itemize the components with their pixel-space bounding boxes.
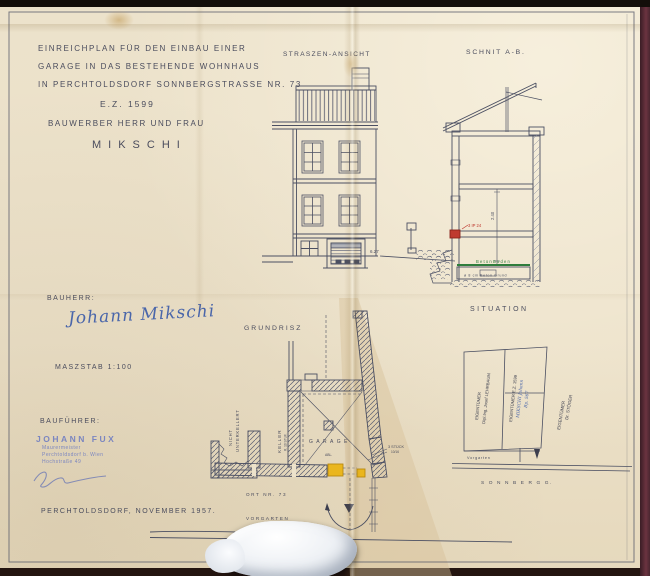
baufuehrer-label: BAUFÜHRER: [40, 418, 101, 425]
section-foundation-label: ø 8 cm Beton Grund [464, 274, 507, 278]
elevation-title: STRASZEN-ANSICHT [283, 51, 371, 58]
section-beam-label: 3 IP 24 [468, 223, 482, 228]
floorplan-keller-sub: R. 10 STUF. [284, 434, 288, 451]
applicant-label: BAUWERBER HERR UND FRAU [48, 119, 205, 128]
section-dim-height: 2.40 [490, 211, 495, 220]
floorplan-stueck-label: 3 STÜCK [388, 445, 405, 449]
section-title: SCHNIT A-B. [466, 49, 526, 56]
date-place-line: PERCHTOLDSDORF, NOVEMBER 1957. [41, 508, 216, 515]
applicant-name: MIKSCHI [92, 139, 187, 151]
section-floor-label: BetonBoden [476, 259, 511, 264]
floorplan-nicht-label: NICHT [228, 429, 233, 446]
floorplan-keller-label: KELLER [277, 429, 282, 453]
stamp-line-4: Hochstraße 49 [42, 459, 116, 465]
situation-owner-right-2: Dr. STÖGER [564, 394, 573, 420]
situation-vorgarten-label: Vorgarten [467, 456, 491, 460]
stamp-line-2: Maurermeister [42, 445, 116, 451]
section-drawing: 3 IP 24 BetonBoden ø 8 cm Beton Grund 2.… [430, 83, 544, 287]
title-line-1: EINREICHPLAN FÜR DEN EINBAU EINER [38, 44, 246, 53]
situation-owner-left-1: EIGENTÜMER [474, 392, 482, 420]
fold-discoloration-band [339, 298, 452, 576]
crumpled-tissue [219, 521, 357, 576]
stamp-line-3: Perchtoldsdorf b. Wien [42, 452, 116, 458]
elevation-dim-ground: 6.27 [370, 249, 379, 254]
floorplan-garage-label: GARAGE [309, 439, 351, 445]
bauherr-label: BAUHERR: [47, 295, 95, 302]
stamp-name: JOHANN FUX [36, 434, 116, 444]
situation-owner-mid-2: MIKSCHI Johann [516, 379, 525, 419]
floorplan-unterkellert-label: UNTERKELLERT [235, 409, 240, 452]
floorplan-drawing: GARAGE ABL. KELLER R. 10 STUF. NICHT UNT… [150, 311, 512, 554]
screenshot-photo: 6.27 STRASZEN-ANSICHT 3 IP 24 [0, 0, 650, 576]
situation-street-label: S O N N B E R G G. [481, 480, 553, 486]
situation-drawing: EIGENTÜMER Dipl.Ing. Josef LEHRBAUM EIGE… [452, 347, 632, 486]
floorplan-abl-label: ABL. [325, 453, 332, 457]
floorplan-title: GRUNDRISZ [244, 325, 302, 332]
floorplan-stueck-sub: 10/16 [391, 450, 399, 454]
scale-label: MASZSTAB 1:100 [55, 364, 133, 371]
photo-edge-top [0, 0, 650, 7]
situation-owner-mid-3: Bp. 567 [524, 390, 531, 409]
situation-title: SITUATION [470, 306, 528, 313]
photo-edge-right [640, 0, 650, 576]
situation-owner-left-2: Dipl.Ing. Josef LEHRBAUM [481, 372, 491, 424]
builder-stamp: JOHANN FUX Maurermeister Perchtoldsdorf … [36, 434, 116, 465]
baufuehrer-signature-squiggle [34, 472, 106, 487]
floorplan-ort-label: ORT NR. 73 [246, 492, 287, 497]
title-line-2: GARAGE IN DAS BESTEHENDE WOHNHAUS [38, 62, 260, 71]
elevation-drawing: 6.27 [262, 68, 455, 268]
title-line-3: IN PERCHTOLDSDORF SONNBERGSTRASSE NR. 73 [38, 80, 302, 89]
parcel-number: E.Z. 1599 [100, 99, 155, 109]
